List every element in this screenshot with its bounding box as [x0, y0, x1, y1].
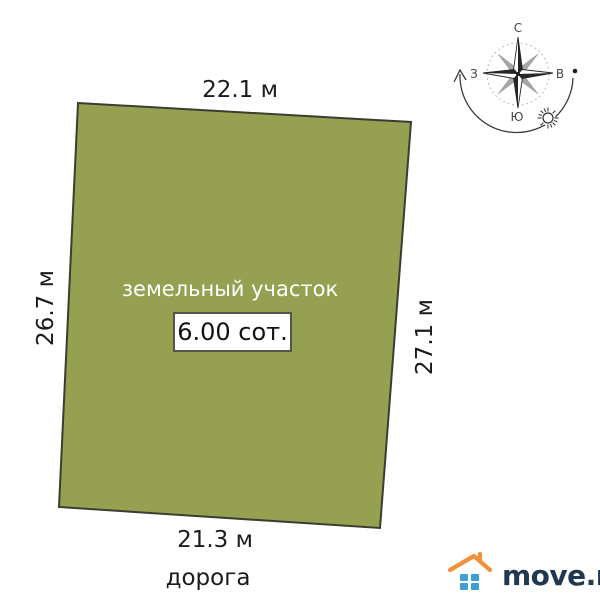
compass-cardinal-points [483, 37, 553, 108]
plot-area-value: 6.00 сот. [177, 318, 288, 346]
dimension-right: 27.1 м [412, 299, 438, 375]
sun-path-start-dot [573, 69, 578, 74]
window-squares [460, 574, 479, 590]
plot-type-label: земельный участок [122, 277, 338, 301]
move-logo-text: move.ru [502, 562, 600, 590]
dimension-top: 22.1 м [202, 77, 278, 103]
compass-east-label: В [556, 67, 564, 81]
sun-icon [538, 108, 559, 129]
dimension-left: 26.7 м [33, 270, 59, 346]
house-icon [446, 550, 494, 592]
compass-west-label: З [470, 67, 478, 81]
plot-area-badge: 6.00 сот. [173, 312, 292, 352]
compass-south-label: Ю [511, 110, 524, 124]
road-label: дорога [166, 565, 251, 591]
compass-north-label: С [514, 21, 522, 35]
land-plot-diagram: 22.1 м 26.7 м 27.1 м 21.3 м дорога земел… [0, 0, 600, 600]
dimension-bottom: 21.3 м [177, 527, 253, 553]
move-logo: move.ru [446, 550, 600, 592]
compass-rose: С В Ю З [450, 12, 586, 138]
